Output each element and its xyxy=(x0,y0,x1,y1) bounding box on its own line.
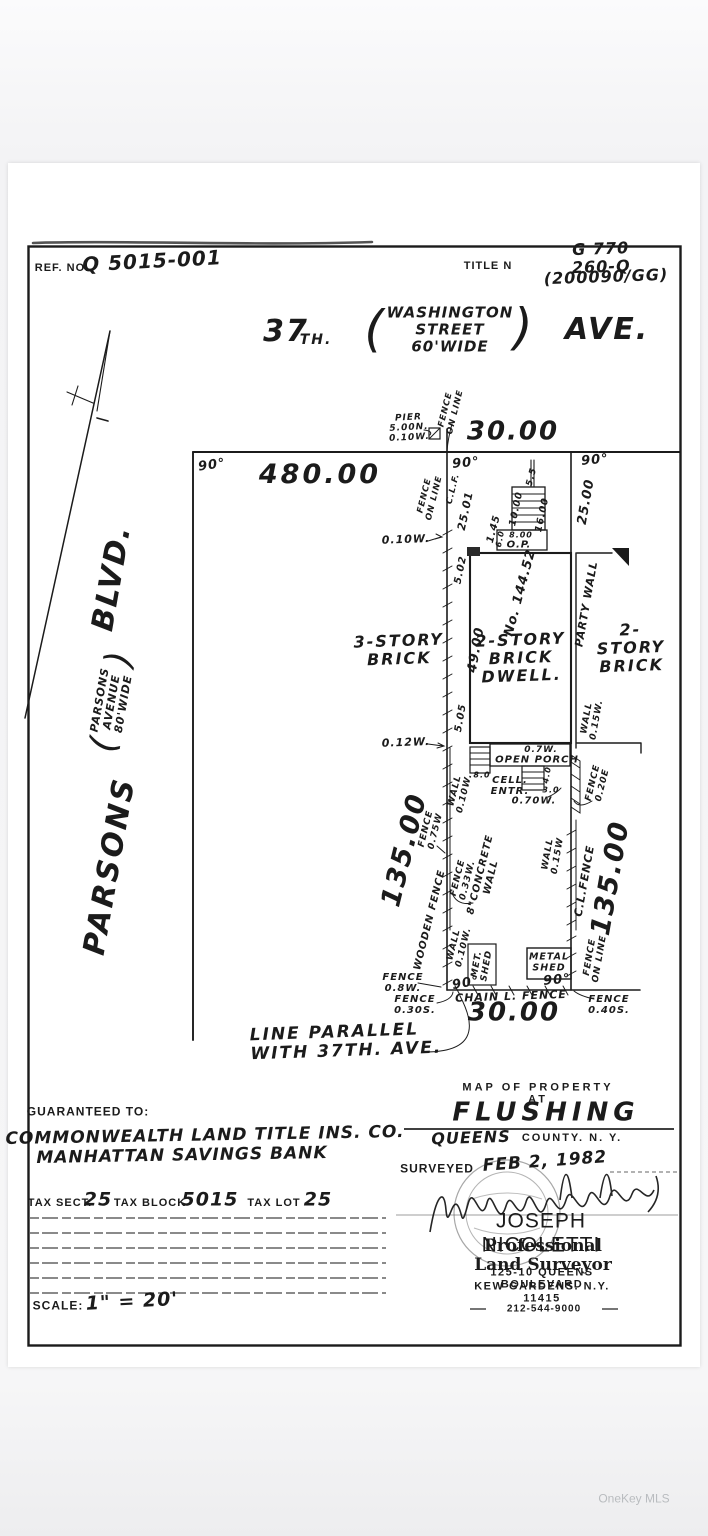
county-label: COUNTY. N. Y. xyxy=(522,1132,622,1144)
dim-8-0: 8.0 xyxy=(473,772,490,781)
fence-0-30s-note: FENCE 0.30S. xyxy=(394,994,436,1016)
cellar-entrance-label: CELL. ENTR. xyxy=(491,775,530,797)
to-parsons-dimension: 480.00 xyxy=(259,460,381,490)
onekey-mls-watermark: OneKey MLS xyxy=(598,1492,669,1505)
tax-sect-value: 25 xyxy=(84,1189,112,1210)
tax-sect-label: TAX SECT. xyxy=(28,1197,92,1209)
open-porch-label: OPEN PORCH xyxy=(495,754,579,765)
dim-3-0: 3.0 xyxy=(542,787,559,796)
rear-dimension: 30.00 xyxy=(468,998,560,1027)
fence-0-10w-top-note: 0.10W. xyxy=(382,533,431,547)
tax-lot-value: 25 xyxy=(304,1189,332,1210)
fence-0-8w-note: FENCE 0.8W. xyxy=(382,972,423,994)
chimney xyxy=(467,547,480,556)
guarantee-ruled-lines xyxy=(30,1218,386,1293)
street-name-37th-suffix: TH. xyxy=(300,333,333,349)
dim-0-70w: 0.70W. xyxy=(512,795,557,806)
line-parallel-note: LINE PARALLEL WITH 37TH. AVE. xyxy=(249,1020,442,1065)
city-name: FLUSHING xyxy=(452,1098,639,1127)
county-handwritten: QUEENS xyxy=(431,1128,511,1149)
building-left-label: 3-STORY BRICK xyxy=(353,631,444,670)
building-right-label: 2-STORY BRICK xyxy=(592,620,671,676)
building-center-label: 2-STORY BRICK DWELL. xyxy=(475,630,567,687)
parsons-paren-lines: PARSONS AVENUE 80'WIDE xyxy=(89,667,136,738)
street-paren-open: ( xyxy=(364,301,384,357)
title-no-label: TITLE N xyxy=(464,260,513,272)
survey-document-page: REF. NO. Q 5015-001 TITLE N G 770 260-Q … xyxy=(0,0,708,1536)
scale-label: SCALE: xyxy=(33,1299,84,1312)
neighbor-corner xyxy=(612,548,629,566)
angle-lot-se: 90° xyxy=(543,973,572,990)
dim-0-12w: 0.12W. xyxy=(382,736,431,750)
guaranteed-to-label: GUARANTEED TO: xyxy=(27,1105,149,1118)
neighbor-south-face xyxy=(577,743,641,753)
pier-note: PIER 5.00N. 0.10W. xyxy=(388,412,430,444)
fence-0-40s-note: FENCE 0.40S. xyxy=(588,994,630,1016)
street-paren-washington: WASHINGTON STREET 60'WIDE xyxy=(387,305,514,356)
metal-shed-label: METAL SHED xyxy=(529,952,569,973)
street-paren-close: ) xyxy=(513,299,533,355)
tax-block-label: TAX BLOCK xyxy=(114,1197,186,1209)
surveyed-label: SURVEYED xyxy=(400,1162,474,1175)
surveyor-phone: 212-544-9000 xyxy=(507,1303,581,1314)
surveyor-address-line2: KEW GARDENS. N.Y. 11415 xyxy=(459,1281,625,1306)
street-name-ave: AVE. xyxy=(565,313,649,347)
angle-lot-ne: 90° xyxy=(581,453,610,470)
ref-no-label: REF. NO. xyxy=(35,262,89,274)
angle-lot-nw: 90° xyxy=(452,456,481,473)
front-dimension: 30.00 xyxy=(467,417,559,446)
tax-block-value: 5015 xyxy=(182,1189,239,1210)
tax-lot-label: TAX LOT xyxy=(247,1197,300,1209)
